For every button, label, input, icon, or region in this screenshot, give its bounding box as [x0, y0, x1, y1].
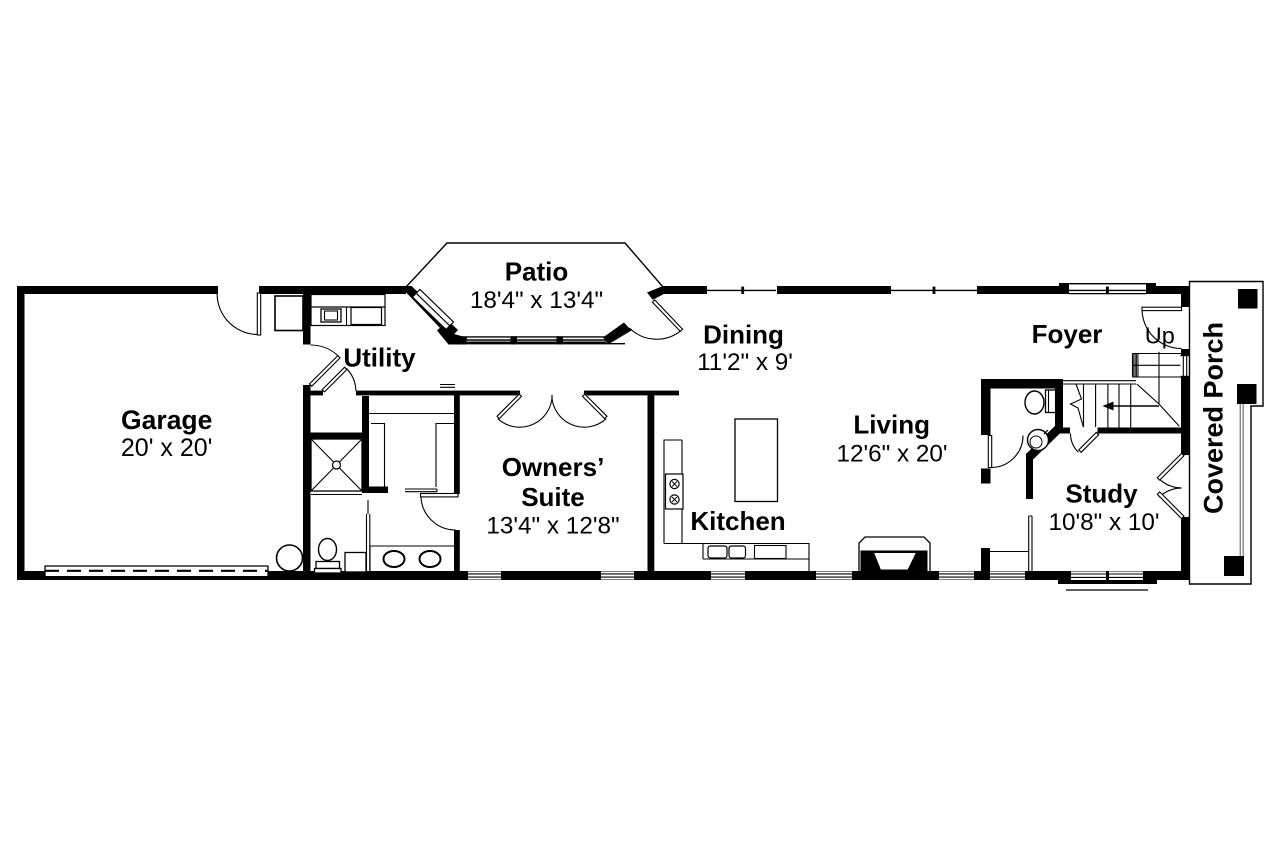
svg-text:Garage: Garage	[121, 405, 212, 435]
svg-text:12'6" x 20': 12'6" x 20'	[836, 441, 947, 468]
svg-text:Owners’: Owners’	[502, 452, 605, 482]
svg-text:Kitchen: Kitchen	[690, 506, 785, 536]
svg-text:Dining: Dining	[703, 320, 784, 350]
svg-text:11'2" x 9': 11'2" x 9'	[697, 349, 793, 376]
svg-text:Foyer: Foyer	[1032, 319, 1103, 349]
svg-text:Living: Living	[853, 410, 930, 440]
svg-text:10'8" x 10': 10'8" x 10'	[1048, 509, 1159, 536]
svg-text:Study: Study	[1065, 479, 1138, 509]
svg-text:Up: Up	[1145, 323, 1175, 349]
svg-text:13'4" x 12'8": 13'4" x 12'8"	[486, 513, 619, 540]
svg-text:20' x 20': 20' x 20'	[121, 434, 213, 462]
svg-text:Utility: Utility	[343, 343, 416, 373]
svg-text:Suite: Suite	[521, 482, 585, 512]
svg-text:Patio: Patio	[505, 256, 569, 286]
svg-text:18'4" x 13'4": 18'4" x 13'4"	[470, 287, 603, 314]
svg-text:Covered Porch: Covered Porch	[1199, 322, 1229, 514]
